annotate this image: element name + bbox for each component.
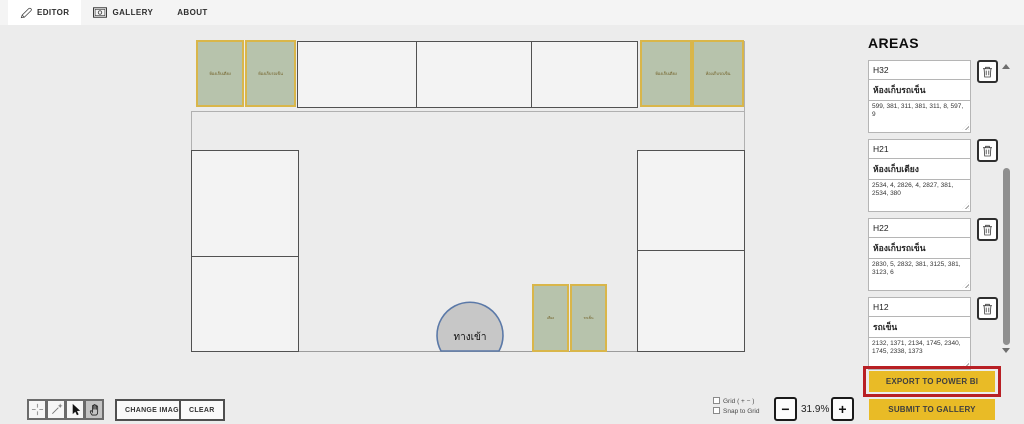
pencil-icon — [20, 7, 32, 19]
area-polygon-label: เตียง — [547, 315, 554, 321]
zoom-in-button[interactable]: + — [831, 397, 854, 421]
room — [637, 150, 745, 251]
area-polygon[interactable]: ห้องเก็บรถเข็น — [245, 40, 296, 107]
room — [191, 150, 299, 257]
clear-button[interactable]: CLEAR — [179, 399, 225, 421]
magic-wand-tool-button[interactable] — [46, 399, 66, 420]
area-card — [868, 139, 971, 212]
trash-icon — [982, 303, 993, 315]
area-coords-wrap — [868, 100, 971, 133]
area-id-input[interactable] — [868, 139, 971, 159]
area-polygon[interactable]: รถเข็น — [570, 284, 607, 352]
zoom-out-button[interactable]: − — [774, 397, 797, 421]
area-row — [868, 139, 998, 212]
area-polygon-label: รถเข็น — [584, 315, 594, 321]
area-row — [868, 297, 998, 370]
area-coords-textarea[interactable] — [868, 258, 971, 291]
tab-about-label: ABOUT — [177, 8, 207, 17]
gallery-icon — [93, 7, 107, 18]
delete-area-button[interactable] — [977, 60, 998, 83]
area-row — [868, 60, 998, 133]
delete-area-button[interactable] — [977, 139, 998, 162]
export-to-powerbi-button[interactable]: EXPORT TO POWER BI — [869, 371, 995, 392]
area-polygon-label: ห้องเก็บรถเข็น — [706, 70, 731, 77]
cursor-icon — [69, 403, 82, 416]
area-row — [868, 218, 998, 291]
area-polygon-label: ห้องเก็บเตียง — [655, 70, 677, 77]
room — [416, 41, 532, 108]
area-polygon[interactable]: เตียง — [532, 284, 569, 352]
delete-area-button[interactable] — [977, 297, 998, 320]
snap-checkbox-label: Snap to Grid — [723, 408, 760, 415]
tab-gallery[interactable]: GALLERY — [81, 0, 165, 25]
area-polygon-label: ห้องเก็บเตียง — [209, 70, 231, 77]
pan-tool-button[interactable] — [84, 399, 104, 420]
area-label-input[interactable] — [868, 158, 971, 180]
area-label-input[interactable] — [868, 316, 971, 338]
tab-about[interactable]: ABOUT — [165, 0, 219, 25]
area-coords-textarea[interactable] — [868, 100, 971, 133]
app-window: EDITOR GALLERY ABOUT ห้องเก็บเตียง ห้องเ… — [0, 0, 1024, 424]
trash-icon — [982, 145, 993, 157]
trash-icon — [982, 224, 993, 236]
hand-icon — [88, 403, 101, 416]
area-coords-wrap — [868, 258, 971, 291]
room — [297, 41, 417, 108]
area-id-input[interactable] — [868, 297, 971, 317]
area-coords-wrap — [868, 179, 971, 212]
tab-bar: EDITOR GALLERY ABOUT — [0, 0, 1024, 25]
area-coords-textarea[interactable] — [868, 179, 971, 212]
scroll-down-icon[interactable] — [1002, 348, 1010, 353]
tab-editor-label: EDITOR — [37, 8, 69, 17]
scrollbar-thumb[interactable] — [1003, 168, 1010, 345]
entrance-label: ทางเข้า — [430, 330, 510, 345]
magic-wand-icon — [50, 403, 63, 416]
room — [191, 256, 299, 352]
snap-to-grid-checkbox[interactable] — [713, 407, 720, 414]
area-polygon[interactable]: ห้องเก็บเตียง — [640, 40, 692, 107]
add-point-tool-button[interactable] — [27, 399, 47, 420]
grid-checkbox-label: Grid ( + − ) — [723, 398, 754, 405]
select-tool-button[interactable] — [65, 399, 85, 420]
area-polygon[interactable]: ห้องเก็บเตียง — [196, 40, 244, 107]
plan-wall-line — [191, 111, 745, 112]
areas-panel-title: AREAS — [868, 35, 919, 51]
area-card — [868, 218, 971, 291]
grid-options: Grid ( + − ) Snap to Grid — [713, 397, 760, 417]
scroll-up-icon[interactable] — [1002, 64, 1010, 69]
tab-gallery-label: GALLERY — [112, 8, 153, 17]
area-label-input[interactable] — [868, 237, 971, 259]
area-id-input[interactable] — [868, 218, 971, 238]
crosshair-icon — [31, 403, 44, 416]
tool-group — [27, 399, 103, 420]
area-polygon[interactable]: ห้องเก็บรถเข็น — [692, 40, 744, 107]
tab-editor[interactable]: EDITOR — [8, 0, 81, 25]
area-list — [868, 60, 998, 376]
area-card — [868, 297, 971, 370]
area-polygon-label: ห้องเก็บรถเข็น — [258, 70, 283, 77]
trash-icon — [982, 66, 993, 78]
room — [637, 250, 745, 352]
grid-checkbox[interactable] — [713, 397, 720, 404]
zoom-level: 31.9% — [801, 404, 829, 415]
room — [531, 41, 638, 108]
area-id-input[interactable] — [868, 60, 971, 80]
plan-wall-line — [744, 41, 745, 151]
area-label-input[interactable] — [868, 79, 971, 101]
area-card — [868, 60, 971, 133]
submit-to-gallery-button[interactable]: SUBMIT TO GALLERY — [869, 399, 995, 420]
delete-area-button[interactable] — [977, 218, 998, 241]
